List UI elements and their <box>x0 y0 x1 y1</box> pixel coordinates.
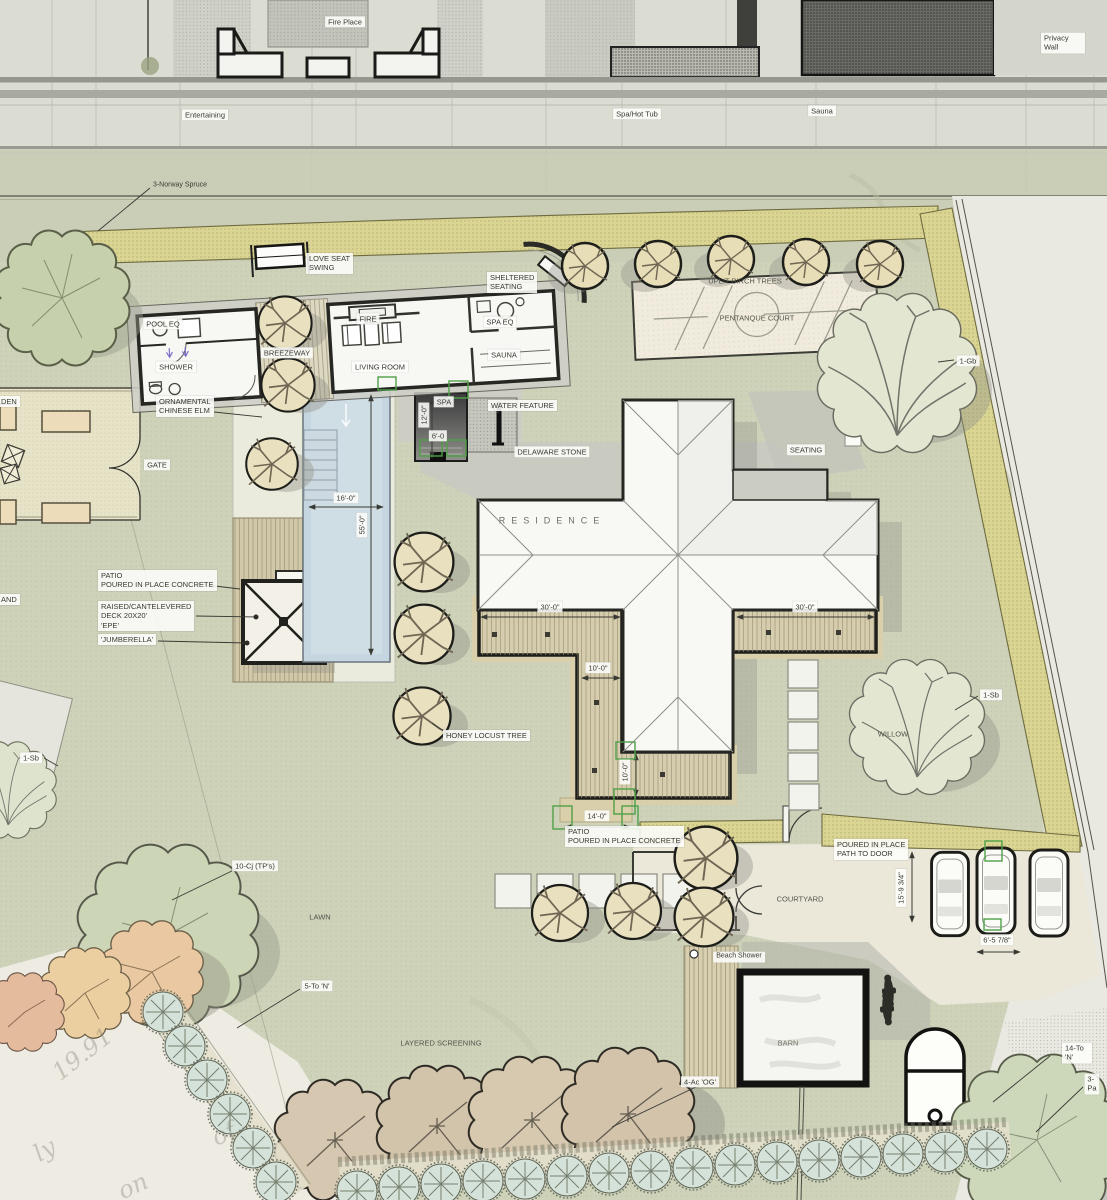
dim-deck-10-bottom: 10'-0" <box>619 759 630 784</box>
delaware-stone-label: DELAWARE STONE <box>514 446 589 457</box>
layered-screening-label: LAYERED SCREENING <box>397 1037 484 1048</box>
spa-eq-label: SPA EQ <box>484 316 517 327</box>
barn-structure <box>740 972 866 1084</box>
spa-hot-tub-label: Spa/Hot Tub <box>613 108 661 119</box>
entertaining-label: Entertaining <box>182 109 228 120</box>
tag-1gb: 1-Gb <box>957 355 980 366</box>
tag-1sb-left: 1-Sb <box>20 752 42 763</box>
living-room-label: LIVING ROOM <box>352 361 408 372</box>
island-label-fragment: AND <box>0 594 20 605</box>
breezeway-label: BREEZEWAY <box>261 347 313 358</box>
seating-label: SEATING <box>787 444 825 455</box>
dim-deck-10-mid: 10'-0" <box>585 662 610 673</box>
dim-pool-width: 16'-0" <box>333 492 358 503</box>
tag-4ac: 4-Ac 'OG' <box>681 1076 719 1087</box>
spa-label: SPA <box>434 396 454 407</box>
gate-label: GATE <box>144 459 170 470</box>
willow-label: WILLOW <box>875 728 911 739</box>
tag-1sb-right: 1-Sb <box>980 689 1002 700</box>
tree-green-topleft <box>0 231 129 366</box>
jumberella-label: 'JUMBERELLA' <box>98 634 156 645</box>
fire-place-label: Fire Place <box>325 16 365 27</box>
pool-eq-label: POOL EQ <box>143 318 182 329</box>
sauna-section-label: Sauna <box>808 105 836 116</box>
tag-14to: 14-To 'N' <box>1062 1043 1092 1064</box>
shower-label: SHOWER <box>156 361 196 372</box>
uplit-birch-label: UPLIT BIRCH TREES <box>705 275 785 286</box>
love-seat-swing-label: LOVE SEAT SWING <box>306 253 353 274</box>
norway-spruce-label: 3-Norway Spruce <box>150 181 210 192</box>
privacy-wall-label: Privacy Wall <box>1041 33 1085 54</box>
fire-label: FIRE <box>356 313 379 324</box>
dim-park-depth: 15'-9 3/4" <box>895 869 906 907</box>
patio-bottom-label: PATIO POURED IN PLACE CONCRETE <box>565 826 684 847</box>
water-feature-label: WATER FEATURE <box>488 400 557 411</box>
lawn-label: LAWN <box>306 911 333 922</box>
dim-park-width: 6'-5 7/8" <box>980 934 1013 945</box>
garden-label-fragment: DEN <box>0 396 20 407</box>
ornamental-elm-label: ORNAMENTAL CHINESE ELM <box>156 396 214 417</box>
dim-spa-width: 6'-0 <box>429 430 447 441</box>
sauna-room-label: SAUNA <box>488 349 520 360</box>
car-3 <box>1030 850 1068 936</box>
dim-patio-14: 14'-0" <box>584 810 609 821</box>
pool <box>303 390 390 662</box>
courtyard-label: COURTYARD <box>774 893 827 904</box>
barn-label: BARN <box>775 1037 802 1048</box>
path-to-door-label: POURED IN PLACE PATH TO DOOR <box>834 839 908 860</box>
raised-deck-label: RAISED/CANTELEVERED DECK 20X20' 'EPE' <box>98 601 194 631</box>
tag-10cj: 10-Cj (TP's) <box>232 860 278 871</box>
dim-deck-30-right: 30'-0" <box>792 601 817 612</box>
patio-left-label: PATIO POURED IN PLACE CONCRETE <box>98 570 217 591</box>
tag-3pa: 3-Pa <box>1084 1074 1099 1095</box>
tag-5to: 5-To 'N' <box>302 980 333 991</box>
car-1 <box>932 852 969 935</box>
sheltered-seating-label: SHELTERED SEATING <box>487 272 537 293</box>
residence-label: RESIDENCE <box>496 514 609 527</box>
petanque-court-label: PENTANQUE COURT <box>717 312 798 323</box>
garden <box>0 388 140 524</box>
site-plan-sheet: Fire Place Privacy Wall Entertaining Spa… <box>0 0 1107 1200</box>
dim-deck-30-left: 30'-0" <box>537 601 562 612</box>
dim-pool-length: 55'-0" <box>356 512 367 537</box>
honey-locust-label: HONEY LOCUST TREE <box>443 730 530 741</box>
beach-shower-label: Beach Shower <box>713 952 765 963</box>
dim-spa-length: 12'-0" <box>418 402 429 427</box>
